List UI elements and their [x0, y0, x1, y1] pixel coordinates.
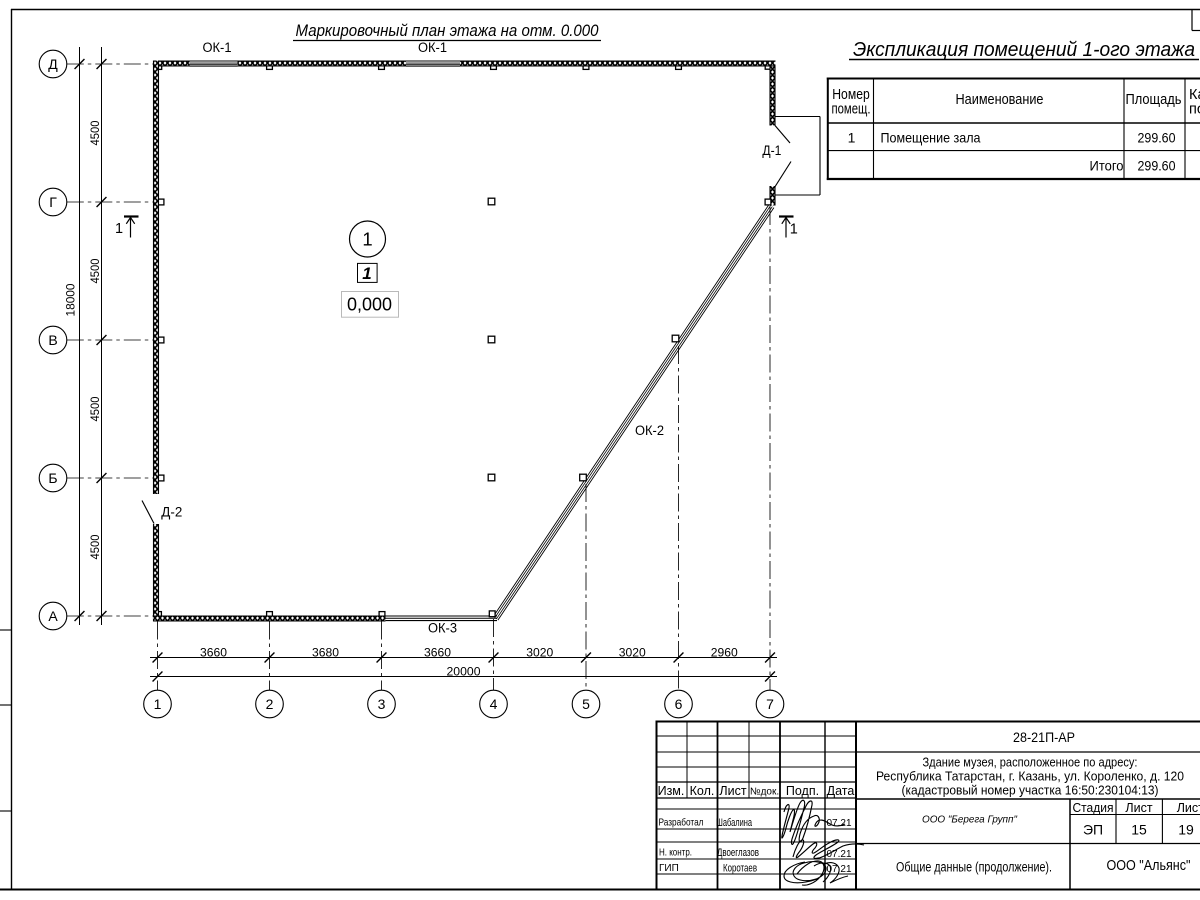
svg-text:2: 2: [266, 696, 274, 712]
svg-text:Наименование: Наименование: [956, 92, 1044, 108]
svg-text:1: 1: [154, 696, 162, 712]
svg-text:3660: 3660: [200, 648, 227, 660]
svg-text:28-21П-АР: 28-21П-АР: [1013, 729, 1075, 745]
svg-text:ОК-1: ОК-1: [203, 40, 232, 55]
svg-text:Здание музея, расположенное по: Здание музея, расположенное по адресу:: [923, 755, 1138, 770]
svg-text:Итого: Итого: [1090, 157, 1124, 173]
svg-text:Двоеглазов: Двоеглазов: [717, 847, 759, 859]
svg-text:(кадастровый номер участка 16:: (кадастровый номер участка 16:50:230104:…: [902, 783, 1159, 798]
svg-text:№док.: №док.: [750, 787, 779, 798]
svg-text:3020: 3020: [526, 648, 553, 660]
svg-text:Д-1: Д-1: [762, 143, 781, 158]
svg-text:4: 4: [490, 696, 498, 712]
svg-text:ОК-3: ОК-3: [428, 620, 457, 635]
svg-text:5: 5: [582, 696, 590, 712]
svg-text:15: 15: [1131, 821, 1147, 837]
svg-text:Помещение зала: Помещение зала: [881, 129, 981, 145]
svg-text:Лист: Лист: [719, 784, 746, 798]
svg-text:помещ.: помещ.: [832, 102, 871, 118]
svg-text:Экспликация помещений 1-ого эт: Экспликация помещений 1-ого этажа: [853, 38, 1195, 61]
svg-text:В: В: [48, 332, 57, 348]
svg-text:Дата: Дата: [827, 784, 855, 798]
svg-text:Б: Б: [48, 470, 57, 486]
svg-text:3660: 3660: [424, 648, 451, 660]
svg-text:ООО "Берега Групп": ООО "Берега Групп": [922, 815, 1018, 826]
svg-text:Шабалина: Шабалина: [716, 817, 752, 829]
svg-text:ООО "Альянс": ООО "Альянс": [1107, 858, 1191, 874]
svg-text:0,000: 0,000: [347, 295, 392, 315]
svg-text:2960: 2960: [711, 648, 738, 660]
svg-text:19: 19: [1178, 821, 1194, 837]
svg-text:1: 1: [362, 264, 371, 283]
svg-text:Маркировочный план этажа на от: Маркировочный план этажа на отм. 0.000: [296, 21, 599, 40]
svg-text:Лист: Лист: [1125, 801, 1152, 815]
svg-text:Стадия: Стадия: [1073, 801, 1114, 815]
svg-text:18000: 18000: [66, 284, 78, 317]
svg-text:1: 1: [362, 229, 372, 250]
svg-text:4500: 4500: [90, 121, 102, 146]
svg-text:Коротаев: Коротаев: [723, 862, 757, 874]
svg-text:Общие данные (продолжение).: Общие данные (продолжение).: [896, 859, 1052, 874]
svg-text:ОК-2: ОК-2: [635, 423, 664, 438]
svg-text:Г: Г: [49, 194, 57, 210]
svg-text:Кол.: Кол.: [690, 784, 715, 798]
svg-text:Д: Д: [48, 56, 58, 72]
svg-text:Площадь: Площадь: [1126, 92, 1182, 108]
svg-text:А: А: [48, 608, 58, 624]
svg-text:ГИП: ГИП: [659, 863, 679, 874]
svg-text:Изм.: Изм.: [658, 784, 685, 798]
svg-text:4500: 4500: [90, 259, 102, 284]
svg-text:3680: 3680: [312, 648, 339, 660]
svg-text:1: 1: [790, 222, 798, 238]
svg-text:Республика Татарстан, г. Казан: Республика Татарстан, г. Казань, ул. Кор…: [876, 769, 1184, 784]
svg-text:7: 7: [766, 696, 774, 712]
svg-text:пожарной: пожарной: [1189, 102, 1200, 118]
svg-text:1: 1: [848, 129, 856, 145]
svg-text:1: 1: [115, 221, 123, 237]
svg-text:299.60: 299.60: [1138, 157, 1176, 173]
svg-text:299.60: 299.60: [1138, 129, 1176, 145]
svg-text:07.21: 07.21: [826, 849, 851, 860]
svg-text:Разработал: Разработал: [659, 817, 704, 829]
svg-text:ОК-1: ОК-1: [418, 40, 447, 55]
svg-text:Д-2: Д-2: [161, 504, 182, 519]
svg-text:4500: 4500: [90, 397, 102, 422]
svg-text:3020: 3020: [619, 648, 646, 660]
svg-text:3: 3: [378, 696, 386, 712]
svg-text:4500: 4500: [90, 535, 102, 560]
svg-text:6: 6: [675, 696, 683, 712]
svg-text:ЭП: ЭП: [1083, 821, 1103, 837]
svg-text:20000: 20000: [447, 667, 481, 679]
svg-text:Н. контр.: Н. контр.: [659, 848, 692, 859]
svg-text:Листов: Листов: [1177, 801, 1200, 815]
svg-text:Подп.: Подп.: [786, 784, 819, 798]
